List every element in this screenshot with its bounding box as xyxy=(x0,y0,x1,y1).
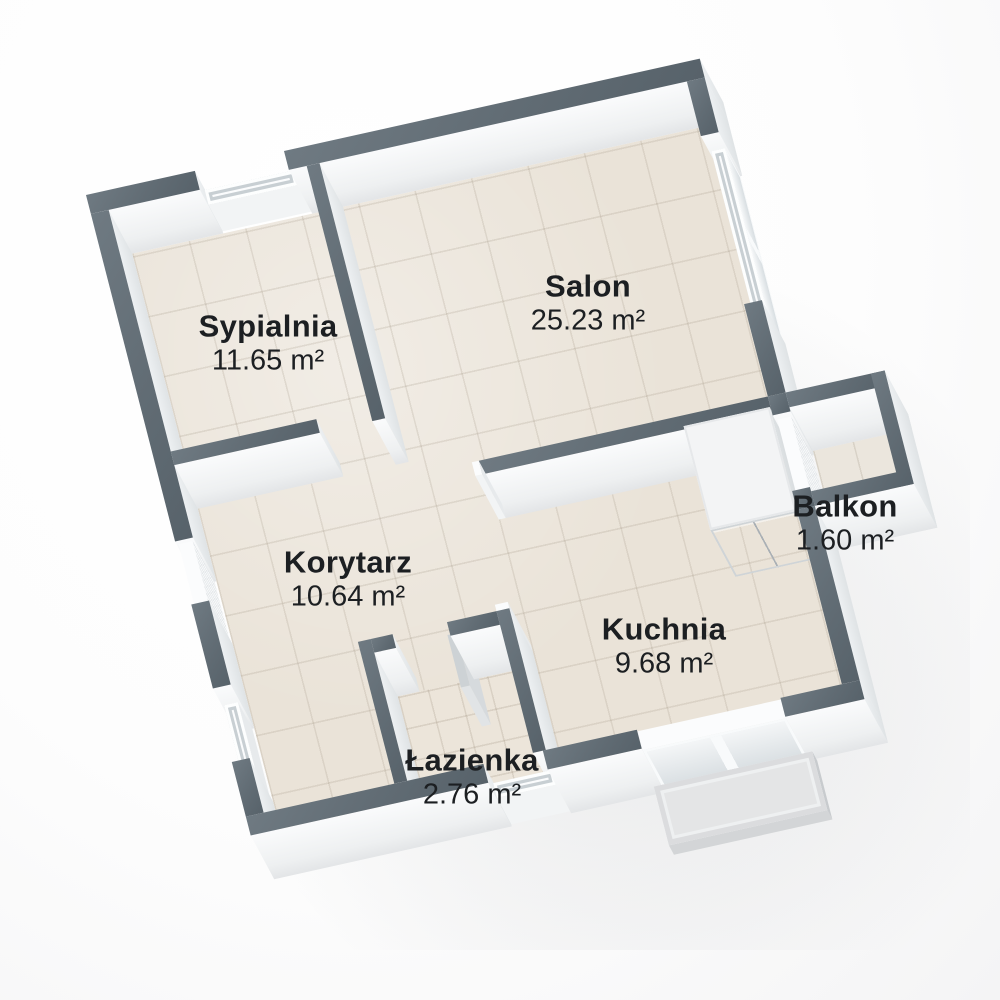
room-name: Korytarz xyxy=(284,546,412,580)
room-name: Salon xyxy=(531,270,645,304)
room-area: 11.65 m² xyxy=(199,344,338,379)
room-label-balkon: Balkon 1.60 m² xyxy=(792,490,897,559)
room-area: 10.64 m² xyxy=(284,580,412,615)
room-label-sypialnia: Sypialnia 11.65 m² xyxy=(199,310,338,379)
room-label-lazienka: Łazienka 2.76 m² xyxy=(405,744,538,813)
room-name: Kuchnia xyxy=(602,613,726,647)
room-label-salon: Salon 25.23 m² xyxy=(531,270,645,339)
room-name: Balkon xyxy=(792,490,897,524)
room-area: 1.60 m² xyxy=(792,524,897,559)
floor-plan-stage: Sypialnia 11.65 m² Salon 25.23 m² Koryta… xyxy=(0,0,1000,1000)
room-area: 9.68 m² xyxy=(602,647,726,682)
room-label-kuchnia: Kuchnia 9.68 m² xyxy=(602,613,726,682)
room-area: 2.76 m² xyxy=(405,778,538,813)
room-name: Łazienka xyxy=(405,744,538,778)
room-name: Sypialnia xyxy=(199,310,338,344)
room-area: 25.23 m² xyxy=(531,304,645,339)
room-label-korytarz: Korytarz 10.64 m² xyxy=(284,546,412,615)
